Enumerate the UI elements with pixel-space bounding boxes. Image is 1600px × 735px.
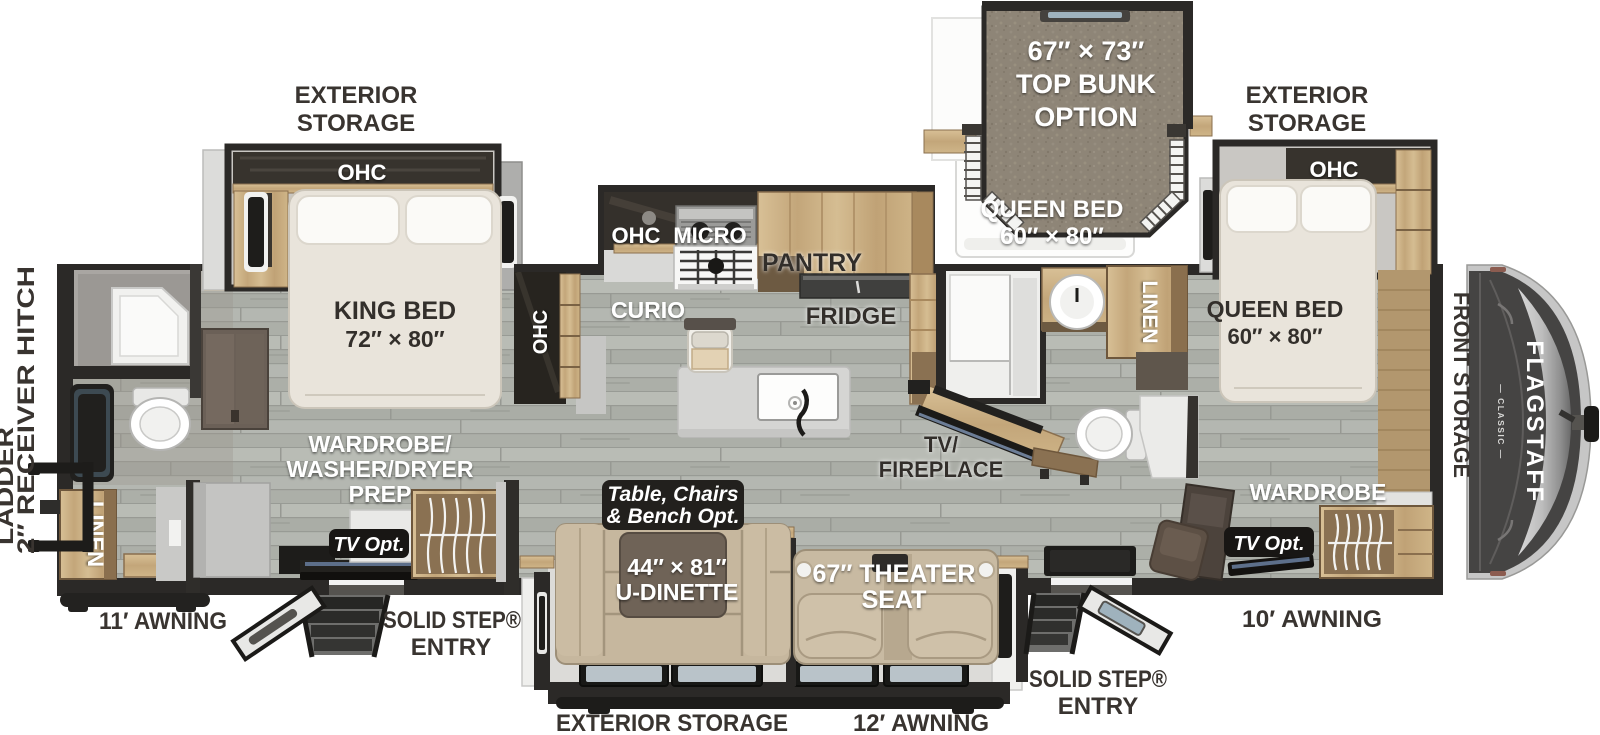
svg-text:ENTRY: ENTRY: [411, 634, 491, 661]
svg-text:OHC: OHC: [338, 160, 387, 185]
svg-text:— CLASSIC —: — CLASSIC —: [1496, 384, 1506, 460]
svg-text:2″ RECEIVER HITCH: 2″ RECEIVER HITCH: [13, 266, 40, 554]
svg-text:MICRO: MICRO: [673, 223, 746, 248]
svg-text:U-DINETTE: U-DINETTE: [616, 579, 739, 605]
svg-text:WARDROBE: WARDROBE: [1250, 479, 1387, 505]
svg-text:WASHER/DRYER: WASHER/DRYER: [287, 456, 474, 482]
svg-text:EXTERIOR STORAGE: EXTERIOR STORAGE: [556, 710, 788, 735]
svg-text:12′ AWNING: 12′ AWNING: [853, 710, 989, 735]
svg-text:SEAT: SEAT: [862, 586, 927, 614]
svg-text:TOP BUNK: TOP BUNK: [1016, 69, 1157, 99]
svg-text:WARDROBE/: WARDROBE/: [308, 431, 452, 457]
svg-text:OHC: OHC: [530, 310, 552, 354]
svg-text:72″ × 80″: 72″ × 80″: [345, 326, 444, 352]
svg-text:STORAGE: STORAGE: [297, 110, 415, 137]
svg-text:& Bench Opt.: & Bench Opt.: [606, 505, 739, 528]
svg-text:Table, Chairs: Table, Chairs: [607, 483, 738, 506]
svg-text:ENTRY: ENTRY: [1058, 693, 1138, 720]
svg-text:OHC: OHC: [1310, 157, 1359, 182]
svg-text:67″ × 73″: 67″ × 73″: [1028, 36, 1145, 66]
svg-text:EXTERIOR: EXTERIOR: [295, 82, 418, 109]
svg-text:LINEN: LINEN: [1138, 281, 1161, 344]
svg-text:TV/: TV/: [924, 432, 958, 457]
svg-text:60″ × 80″: 60″ × 80″: [1227, 324, 1323, 349]
svg-text:TV Opt.: TV Opt.: [333, 534, 404, 556]
svg-text:FRIDGE: FRIDGE: [806, 303, 897, 330]
svg-text:11′ AWNING: 11′ AWNING: [99, 608, 227, 635]
svg-text:CURIO: CURIO: [611, 297, 685, 323]
svg-text:PANTRY: PANTRY: [762, 249, 862, 277]
svg-text:60″ × 80″: 60″ × 80″: [1000, 223, 1104, 250]
svg-text:SOLID STEP®: SOLID STEP®: [383, 607, 521, 634]
svg-text:TV Opt.: TV Opt.: [1233, 533, 1304, 555]
svg-text:FRONT STORAGE: FRONT STORAGE: [1449, 292, 1474, 478]
svg-text:OHC: OHC: [612, 223, 661, 248]
svg-text:QUEEN BED: QUEEN BED: [981, 196, 1124, 223]
svg-text:STORAGE: STORAGE: [1248, 110, 1366, 137]
svg-text:FIREPLACE: FIREPLACE: [879, 457, 1004, 482]
svg-text:OPTION: OPTION: [1034, 102, 1138, 132]
svg-text:KING BED: KING BED: [334, 297, 456, 325]
svg-text:44″ × 81″: 44″ × 81″: [627, 554, 726, 580]
svg-text:QUEEN BED: QUEEN BED: [1207, 296, 1344, 322]
svg-text:FLAGSTAFF: FLAGSTAFF: [1521, 340, 1548, 503]
svg-text:PREP: PREP: [349, 481, 412, 507]
svg-text:67″ THEATER: 67″ THEATER: [813, 560, 976, 588]
svg-text:EXTERIOR: EXTERIOR: [1246, 82, 1369, 109]
svg-text:SOLID STEP®: SOLID STEP®: [1029, 666, 1167, 693]
svg-text:10′ AWNING: 10′ AWNING: [1242, 606, 1382, 633]
